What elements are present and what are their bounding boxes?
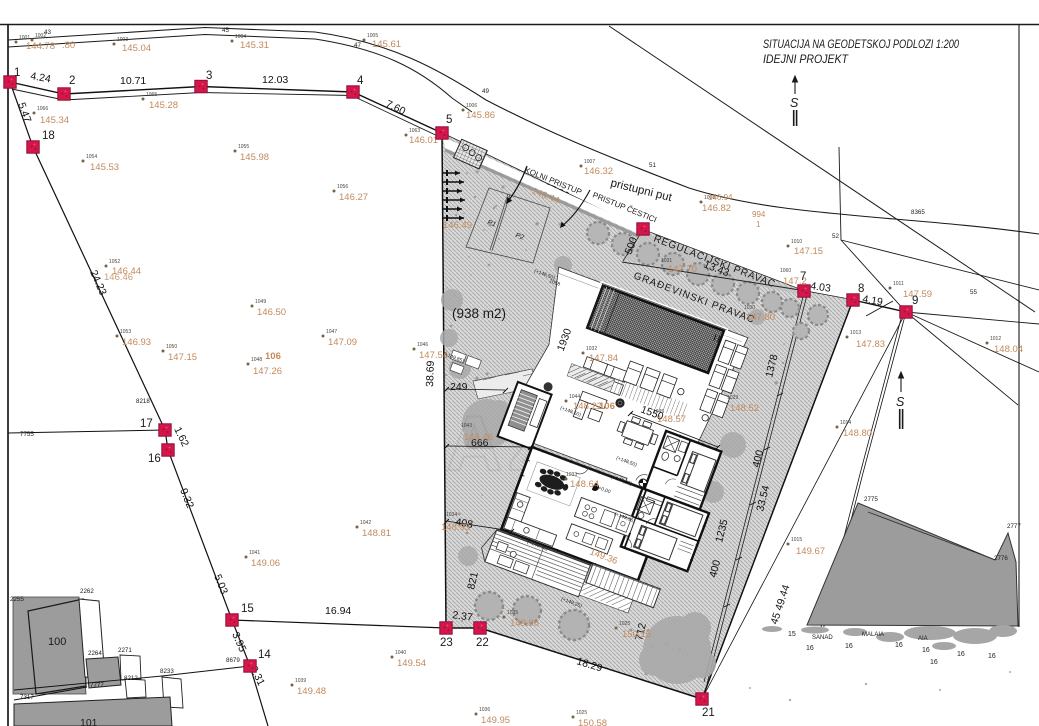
svg-text:1034: 1034 — [446, 512, 457, 518]
svg-text:147.84: 147.84 — [589, 353, 618, 364]
svg-text:16: 16 — [845, 643, 853, 650]
svg-text:2255: 2255 — [10, 596, 24, 603]
svg-text:51: 51 — [649, 162, 656, 169]
svg-text:148.04: 148.04 — [994, 344, 1023, 355]
svg-text:146.49: 146.49 — [443, 220, 472, 231]
svg-text:1014: 1014 — [840, 420, 851, 426]
svg-text:49: 49 — [482, 88, 489, 95]
svg-text:38.69: 38.69 — [424, 360, 437, 387]
svg-text:147.70: 147.70 — [668, 264, 697, 275]
svg-text:18: 18 — [42, 130, 55, 142]
svg-text:8679: 8679 — [226, 657, 240, 664]
svg-text:146.27: 146.27 — [339, 192, 368, 203]
svg-text:148.81: 148.81 — [362, 528, 391, 539]
svg-text:148.93: 148.93 — [441, 522, 470, 533]
svg-text:1012: 1012 — [990, 336, 1001, 342]
svg-text:144.78: 144.78 — [26, 41, 55, 52]
svg-text:146.01: 146.01 — [409, 135, 438, 146]
svg-text:1007: 1007 — [584, 159, 595, 165]
svg-text:16: 16 — [895, 642, 903, 649]
svg-text:1025: 1025 — [576, 710, 587, 716]
svg-text:146.94: 146.94 — [708, 193, 733, 202]
svg-text:3: 3 — [206, 70, 212, 82]
svg-text:1043: 1043 — [461, 423, 472, 429]
svg-text:4: 4 — [357, 75, 364, 87]
svg-text:15: 15 — [241, 603, 254, 615]
svg-text:1006: 1006 — [466, 103, 477, 109]
svg-text:2: 2 — [69, 75, 75, 87]
svg-text:2271: 2271 — [118, 647, 132, 654]
svg-text:8: 8 — [858, 283, 864, 295]
svg-text:147.26: 147.26 — [253, 366, 282, 377]
svg-text:16: 16 — [930, 659, 938, 666]
svg-text:1042: 1042 — [360, 520, 371, 526]
svg-text:145.61: 145.61 — [372, 39, 401, 50]
svg-text:149.96: 149.96 — [510, 618, 539, 629]
svg-text:1060: 1060 — [780, 268, 791, 274]
svg-text:7777: 7777 — [90, 682, 104, 689]
svg-text:16: 16 — [957, 651, 965, 658]
svg-text:IDEJNI PROJEKT: IDEJNI PROJEKT — [763, 54, 849, 66]
svg-text:1025: 1025 — [619, 621, 630, 627]
svg-text:1056: 1056 — [337, 184, 348, 190]
svg-text:16: 16 — [922, 647, 930, 654]
svg-text:1039: 1039 — [295, 678, 306, 684]
svg-text:146.46: 146.46 — [104, 272, 133, 283]
svg-text:249: 249 — [450, 381, 468, 393]
svg-text:1002: 1002 — [35, 33, 46, 39]
svg-text:17: 17 — [140, 418, 153, 430]
svg-text:145.86: 145.86 — [466, 110, 495, 121]
svg-text:145.34: 145.34 — [40, 115, 69, 126]
svg-text:21: 21 — [702, 707, 715, 719]
svg-text:1053: 1053 — [120, 329, 131, 335]
svg-text:1: 1 — [14, 67, 20, 79]
svg-text:149.95: 149.95 — [481, 715, 510, 726]
svg-text:1065: 1065 — [146, 92, 157, 98]
svg-text:SITUACIJA NA GEODETSKOJ PODLOZ: SITUACIJA NA GEODETSKOJ PODLOZI 1:200 — [763, 39, 959, 51]
svg-text:7755: 7755 — [20, 431, 34, 438]
svg-text:8233: 8233 — [160, 668, 174, 675]
svg-text:16: 16 — [988, 653, 996, 660]
svg-text:146.82: 146.82 — [702, 203, 731, 214]
svg-text:101: 101 — [80, 717, 98, 726]
svg-text:8365: 8365 — [911, 209, 925, 216]
svg-text:S: S — [896, 395, 905, 409]
svg-text:S: S — [790, 96, 799, 110]
svg-text:14: 14 — [258, 649, 271, 661]
svg-text:145.04: 145.04 — [122, 43, 151, 54]
svg-text:AIA: AIA — [918, 636, 928, 642]
svg-text:55: 55 — [970, 289, 977, 296]
svg-text:149.67: 149.67 — [796, 546, 825, 557]
svg-text:1035: 1035 — [507, 610, 518, 616]
svg-text:15: 15 — [788, 631, 796, 638]
svg-text:1066: 1066 — [37, 106, 48, 112]
svg-text:2264: 2264 — [88, 650, 102, 657]
svg-text:16: 16 — [806, 645, 814, 652]
svg-text:9: 9 — [912, 295, 918, 307]
svg-text:150.15: 150.15 — [622, 629, 651, 640]
svg-text:149.48: 149.48 — [297, 686, 326, 697]
svg-text:10.71: 10.71 — [120, 75, 146, 87]
svg-text:146.93: 146.93 — [122, 337, 151, 348]
svg-text:8218: 8218 — [136, 398, 150, 405]
svg-text:146.46: 146.46 — [464, 432, 493, 443]
svg-text:1032: 1032 — [586, 346, 597, 352]
svg-text:1049: 1049 — [255, 299, 266, 305]
svg-text:145.28: 145.28 — [149, 100, 178, 111]
svg-text:23: 23 — [440, 637, 453, 649]
svg-text:149.54: 149.54 — [397, 658, 426, 669]
svg-text:1030: 1030 — [744, 305, 755, 311]
svg-text:147.09: 147.09 — [328, 337, 357, 348]
svg-text:150.58: 150.58 — [578, 718, 607, 726]
svg-text:5: 5 — [446, 114, 452, 126]
svg-text:100: 100 — [48, 636, 66, 648]
svg-text:1015: 1015 — [791, 537, 802, 543]
svg-text:1050: 1050 — [166, 344, 177, 350]
svg-text:1055: 1055 — [238, 144, 249, 150]
svg-text:106: 106 — [265, 351, 281, 362]
svg-text:2262: 2262 — [80, 588, 94, 595]
svg-text:1046: 1046 — [417, 342, 428, 348]
svg-text:7: 7 — [800, 271, 806, 283]
svg-text:1033: 1033 — [566, 472, 577, 478]
svg-text:147.15: 147.15 — [168, 352, 197, 363]
svg-text:16.94: 16.94 — [325, 605, 351, 617]
svg-text:2775: 2775 — [864, 496, 878, 503]
svg-text:(938 m2): (938 m2) — [452, 306, 506, 321]
svg-text:1040: 1040 — [395, 650, 406, 656]
svg-text:47: 47 — [354, 42, 361, 49]
svg-text:.80: .80 — [62, 40, 75, 51]
svg-text:52: 52 — [832, 233, 839, 240]
svg-text:12.03: 12.03 — [262, 74, 288, 86]
svg-text:1047: 1047 — [326, 329, 337, 335]
svg-text:16: 16 — [148, 453, 161, 465]
svg-text:1052: 1052 — [109, 259, 120, 265]
svg-text:146.32: 146.32 — [584, 166, 613, 177]
svg-text:2776: 2776 — [994, 555, 1008, 562]
svg-text:1: 1 — [756, 220, 761, 229]
svg-text:146.50: 146.50 — [257, 307, 286, 318]
svg-text:145.53: 145.53 — [90, 162, 119, 173]
svg-text:106: 106 — [599, 401, 615, 412]
svg-text:1036: 1036 — [479, 707, 490, 713]
svg-text:994: 994 — [752, 210, 766, 219]
svg-text:1048: 1048 — [251, 357, 262, 363]
svg-text:149.06: 149.06 — [251, 558, 280, 569]
svg-text:1011: 1011 — [893, 281, 904, 287]
svg-text:1063: 1063 — [409, 128, 420, 134]
svg-text:147.15: 147.15 — [794, 246, 823, 257]
svg-text:148.64: 148.64 — [570, 479, 599, 490]
svg-text:145.98: 145.98 — [240, 152, 269, 163]
svg-text:148.80: 148.80 — [843, 428, 872, 439]
svg-text:1044: 1044 — [569, 394, 580, 400]
svg-text:22: 22 — [476, 637, 489, 649]
svg-text:1041: 1041 — [249, 550, 260, 556]
svg-text:45: 45 — [222, 27, 229, 34]
svg-text:147.80: 147.80 — [746, 312, 775, 323]
svg-text:1013: 1013 — [850, 330, 861, 336]
svg-text:1054: 1054 — [86, 154, 97, 160]
svg-text:148.52: 148.52 — [730, 403, 759, 414]
svg-text:8212: 8212 — [124, 675, 138, 682]
svg-text:1010: 1010 — [791, 239, 802, 245]
svg-text:147.83: 147.83 — [856, 339, 885, 350]
svg-text:SANAD: SANAD — [812, 635, 833, 641]
svg-text:2777: 2777 — [1007, 523, 1021, 530]
svg-text:MALAIA: MALAIA — [862, 632, 884, 638]
svg-text:7317: 7317 — [20, 694, 34, 701]
svg-text:145.31: 145.31 — [240, 40, 269, 51]
svg-text:1029: 1029 — [727, 395, 738, 401]
